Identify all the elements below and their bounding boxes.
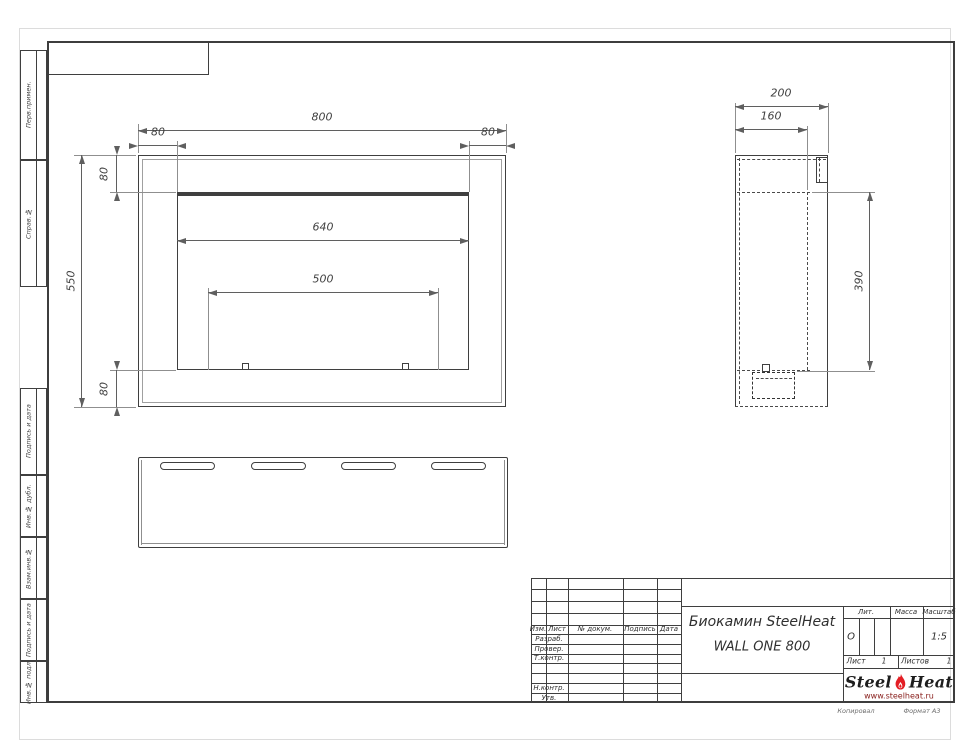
title-block-line [531, 589, 681, 590]
bracket-hidden-line [819, 158, 820, 182]
dim-text-overall-height: 550 [65, 271, 78, 292]
designation-block [49, 43, 209, 75]
dim-line-overall-width [138, 130, 506, 131]
sheets-label: Листов [901, 657, 929, 666]
extension-line [438, 288, 439, 370]
strip-cell-vzam-inv: Взам.инв.№ [20, 537, 47, 599]
strip-label: Инв.№ дубл. [21, 476, 36, 536]
dim-line-inner-depth [735, 129, 807, 130]
hanging-bracket [816, 157, 828, 183]
burner-hidden-line [756, 378, 792, 379]
title-block-line [874, 618, 875, 655]
title-block-line [531, 578, 955, 579]
burner-box [752, 372, 795, 399]
dim-text-slot-span: 500 [313, 273, 334, 286]
extension-line [110, 370, 176, 371]
drawing-sheet: Перв.примен. Справ.№ Подпись и дата Инв.… [0, 0, 970, 749]
strip-label: Перв.примен. [21, 51, 36, 159]
burner-tab [762, 364, 770, 372]
dim-line-slot-span [208, 292, 438, 293]
role-tkontr: Т.контр. [534, 654, 564, 662]
copy-note: Копировал [837, 707, 874, 715]
logo-word-steel: Steel [845, 673, 892, 692]
title-block-line [890, 606, 891, 655]
title-block-line [623, 578, 624, 703]
title-block-line [843, 668, 955, 669]
title-block-line [843, 618, 955, 619]
side-hidden-line [737, 159, 826, 160]
dim-text-depth: 200 [771, 87, 792, 100]
plan-inner-right-edge [504, 460, 505, 545]
side-opening-hidden [807, 192, 808, 370]
sheet-number: 1 [882, 657, 887, 666]
logo-word-heat: Heat [909, 673, 953, 692]
plan-view-outline [138, 457, 508, 548]
title-block-line [531, 673, 843, 674]
sheet-label: Лист [846, 657, 865, 666]
lit-value: О [847, 632, 855, 643]
vent-slot-2 [251, 462, 306, 470]
extension-line [812, 192, 875, 193]
extension-line [74, 407, 136, 408]
logo-website: www.steelheat.ru [864, 692, 934, 701]
format-note: Формат А3 [903, 707, 940, 715]
role-utv: Утв. [542, 694, 557, 702]
role-prover: Провер. [534, 645, 563, 653]
title-block-line [531, 601, 681, 602]
vent-slot-3 [341, 462, 396, 470]
col-header-list: Лист [548, 625, 566, 633]
strip-cell-podpis-data-1: Подпись и дата [20, 388, 47, 475]
strip-label: Подпись и дата [21, 389, 36, 474]
strip-label: Взам.инв.№ [21, 538, 36, 598]
col-header-izm: Изм. [530, 625, 546, 633]
dim-line-opening-height [869, 192, 870, 370]
dim-text-opening-width: 640 [313, 221, 334, 234]
vent-slot-4 [431, 462, 486, 470]
dim-text-margin-right: 80 [481, 126, 495, 139]
title-block-line [531, 613, 681, 614]
dim-text-opening-height: 390 [853, 271, 866, 292]
strip-cell-podpis-data-2: Подпись и дата [20, 599, 47, 661]
col-header-date: Дата [660, 625, 678, 633]
dim-text-margin-top: 80 [98, 167, 111, 181]
role-nkontr: Н.контр. [533, 684, 564, 692]
title-block-line [681, 578, 682, 703]
dim-text-overall-width: 800 [312, 111, 333, 124]
dim-line-margin-top [116, 155, 117, 192]
title-block-line [531, 578, 532, 703]
plan-inner-bottom-edge [141, 543, 505, 544]
steelheat-logo: Steel Heat [845, 673, 953, 692]
dim-line-margin-right [469, 145, 506, 146]
scale-value: 1:5 [931, 632, 947, 643]
strip-label: Справ.№ [21, 161, 36, 286]
title-block-line [657, 578, 658, 703]
doc-title-line2: WALL ONE 800 [714, 640, 811, 655]
plan-inner-left-edge [141, 460, 142, 545]
mount-tab-right [402, 363, 409, 370]
title-block-line [531, 663, 681, 664]
strip-cell-inv-podl: Инв.№ подл. [20, 661, 47, 703]
dim-text-margin-left: 80 [151, 126, 165, 139]
dim-line-opening-width [177, 240, 469, 241]
title-block-line [898, 655, 899, 668]
strip-cell-sprav-no: Справ.№ [20, 160, 47, 287]
col-header-doc: № докум. [578, 625, 613, 633]
side-view-bottom-hidden-line [735, 406, 828, 407]
extension-line [807, 126, 808, 190]
dim-line-margin-left [138, 145, 177, 146]
extension-line [797, 371, 875, 372]
extension-line [208, 288, 209, 370]
mass-label: Масса [895, 608, 917, 616]
extension-line [469, 141, 470, 192]
extension-line [828, 103, 829, 153]
scale-label: Масштаб [922, 608, 955, 616]
strip-label: Инв.№ подл. [21, 662, 36, 702]
doc-title-line1: Биокамин SteelHeat [689, 614, 835, 630]
sheets-total: 1 [947, 657, 952, 666]
title-block-line [568, 578, 569, 703]
dim-line-overall-height [81, 155, 82, 407]
dim-text-margin-bottom: 80 [98, 382, 111, 396]
strip-cell-perv-primen: Перв.примен. [20, 50, 47, 160]
lit-label: Лит. [858, 608, 874, 616]
dim-text-inner-depth: 160 [761, 110, 782, 123]
opening-top-band [178, 193, 468, 196]
side-hidden-line [739, 158, 740, 404]
role-razrab: Разраб. [535, 635, 563, 643]
strip-label: Подпись и дата [21, 600, 36, 660]
flame-icon [894, 673, 907, 691]
title-block-line [681, 606, 955, 607]
vent-slot-1 [160, 462, 215, 470]
title-block-line [859, 618, 860, 655]
dim-line-depth [735, 106, 828, 107]
strip-cell-inv-dubl: Инв.№ дубл. [20, 475, 47, 537]
col-header-sign: Подпись [624, 625, 656, 633]
mount-tab-left [242, 363, 249, 370]
dim-line-margin-bottom [116, 370, 117, 407]
side-opening-top-hidden [737, 192, 810, 193]
